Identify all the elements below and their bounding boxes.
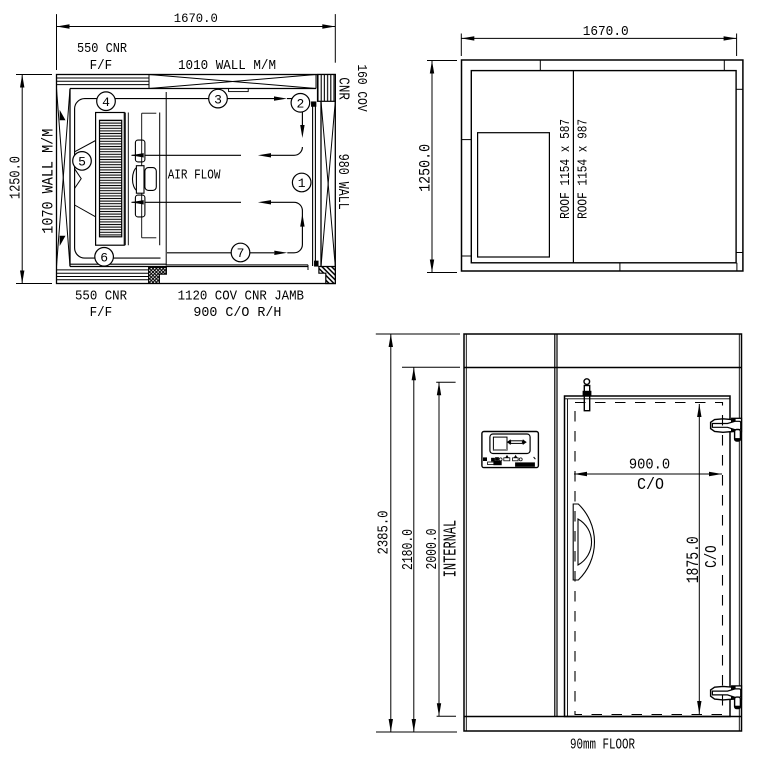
svg-text:4: 4 [102,95,110,110]
svg-text:5: 5 [78,155,86,170]
svg-text:ROOF 1154 x 587: ROOF 1154 x 587 [559,119,574,219]
svg-text:90mm FLOOR: 90mm FLOOR [570,738,635,754]
svg-text:C/O: C/O [703,545,722,568]
svg-text:1010 WALL M/M: 1010 WALL M/M [178,59,276,74]
svg-text:2000.0: 2000.0 [425,529,441,570]
svg-text:6: 6 [100,251,108,266]
svg-text:980 WALL: 980 WALL [334,154,351,210]
svg-text:1070 WALL M/M: 1070 WALL M/M [40,129,58,234]
svg-text:1120 COV CNR JAMB: 1120 COV CNR JAMB [178,290,304,305]
svg-text:3: 3 [214,92,222,107]
svg-text:1250.0: 1250.0 [417,144,435,192]
svg-text:7: 7 [237,246,245,261]
svg-text:F/F: F/F [90,59,113,74]
svg-text:1670.0: 1670.0 [174,11,218,26]
svg-text:2: 2 [296,97,304,112]
svg-text:550 CNR: 550 CNR [77,42,127,57]
svg-text:900.0: 900.0 [629,458,670,474]
svg-text:2385.0: 2385.0 [376,511,392,555]
svg-text:INTERNAL: INTERNAL [440,520,461,578]
svg-text:CNR: CNR [334,77,351,100]
svg-text:F/F: F/F [90,306,113,321]
svg-text:1250.0: 1250.0 [7,156,24,199]
svg-text:C/O: C/O [637,476,664,495]
svg-text:1875.0: 1875.0 [685,536,704,583]
svg-text:ROOF 1154 x 987: ROOF 1154 x 987 [577,119,592,219]
svg-text:160 COV: 160 COV [353,64,368,112]
svg-text:AIR FLOW: AIR FLOW [168,168,221,184]
svg-text:550 CNR: 550 CNR [75,290,127,305]
svg-text:900 C/O R/H: 900 C/O R/H [193,306,281,321]
svg-text:1: 1 [298,176,306,191]
svg-text:2180.0: 2180.0 [400,529,417,570]
svg-text:1670.0: 1670.0 [583,24,629,40]
